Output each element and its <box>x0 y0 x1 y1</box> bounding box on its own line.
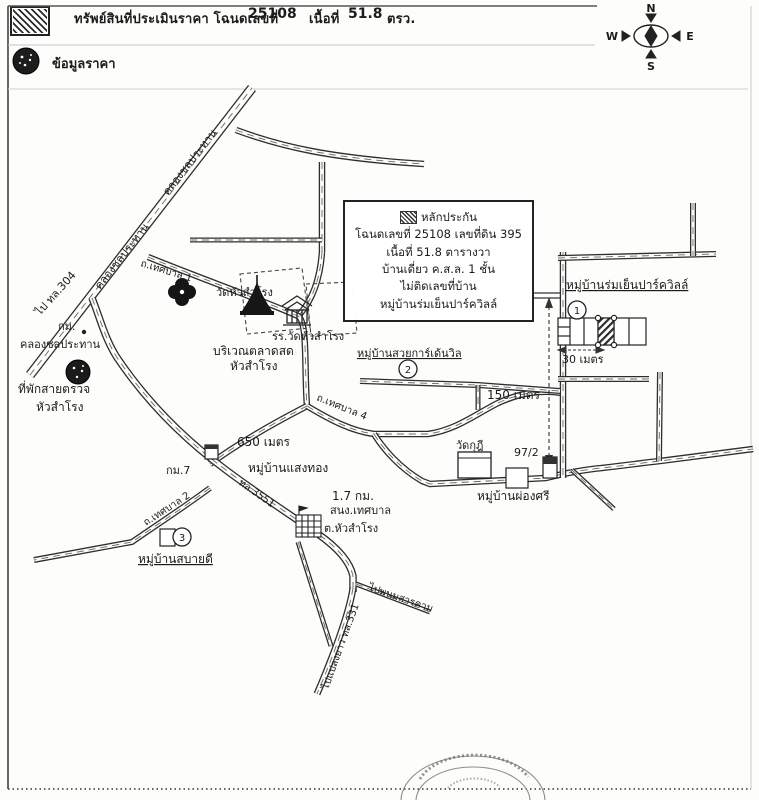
numbered-point-2: 2 <box>399 360 417 378</box>
wat-kudi-icon <box>458 452 491 478</box>
compass-rose: N S W E <box>606 2 694 73</box>
label-150m: 150 เมตร <box>487 388 541 402</box>
numbered-point-1: 1 <box>568 301 586 319</box>
appraisal-map-page: ทรัพย์สินที่ประเมินราคา โฉนดเลขที่ 25108… <box>0 0 759 800</box>
svg-text:3: 3 <box>179 533 185 544</box>
collateral-hatch-swatch <box>400 211 417 224</box>
label-650m: 650 เมตร <box>237 435 291 449</box>
compass-s: S <box>647 60 655 73</box>
site-map: N S W E <box>0 0 759 800</box>
compass-w: W <box>606 30 618 43</box>
label-wat-hua-samrong: วัดหัวสำโรง <box>216 285 273 299</box>
label-police-1: ที่พักสายตรวจ <box>18 380 90 396</box>
phong-si-building-icon <box>506 468 528 488</box>
label-canal-left: คลองชลประทาน <box>20 338 101 351</box>
svg-text:2: 2 <box>405 365 411 376</box>
label-police-2: หัวสำโรง <box>36 400 83 414</box>
legend-village-line: หมู่บ้านร่มเย็นปาร์ควิลล์ <box>380 296 497 313</box>
label-municipal-2: ต.หัวสำโรง <box>324 521 378 535</box>
label-village-sabai-dee: หมู่บ้านสบายดี <box>138 552 213 567</box>
label-30m: 30 เมตร <box>562 353 604 366</box>
approval-stamp <box>401 755 545 800</box>
label-1-7km: 1.7 กม. <box>332 489 374 503</box>
quatrefoil-landmark-icon <box>168 278 196 306</box>
legend-title: หลักประกัน <box>421 209 477 226</box>
house-97-2-icon <box>543 457 557 478</box>
label-school: รร.วัดหัวสำโรง <box>272 329 344 343</box>
label-village-rom-yen: หมู่บ้านร่มเย็นปาร์ควิลล์ <box>566 277 688 293</box>
label-market-1: บริเวณตลาดสด <box>213 344 294 358</box>
road-top-branch <box>236 130 424 164</box>
legend-area-line: เนื้อที่ 51.8 ตารางวา <box>386 244 490 261</box>
legend-no-number-line: ไม่ติดเลขที่บ้าน <box>400 278 476 295</box>
subject-plot-hatched <box>598 318 614 345</box>
label-village-phong-si: หมู่บ้านผ่องศรี <box>477 489 550 504</box>
legend-deed-line: โฉนดเลขที่ 25108 เลขที่ดิน 395 <box>355 226 522 243</box>
label-house-97-2: 97/2 <box>514 446 539 459</box>
numbered-point-3: 3 <box>173 528 191 546</box>
label-to-phanom: ไปพนมสารคาม <box>366 581 435 615</box>
label-village-saeng-thong: หมู่บ้านแสงทอง <box>248 461 328 476</box>
label-canal-mid: คลองชลประทาน <box>92 220 152 291</box>
municipal-office-icon <box>296 506 321 537</box>
housing-row-inset <box>558 315 646 347</box>
compass-n: N <box>646 2 655 15</box>
label-canal-upper: คลองชลประทาน <box>160 126 220 197</box>
label-km-post: กม. <box>58 320 75 333</box>
collateral-legend-box: หลักประกัน โฉนดเลขที่ 25108 เลขที่ดิน 39… <box>343 200 534 322</box>
road-network <box>30 88 753 694</box>
shelter-icon <box>205 445 218 459</box>
price-data-icon <box>13 48 39 74</box>
legend-connector-road <box>534 293 561 298</box>
compass-e: E <box>686 30 694 43</box>
label-municipal-1: สนง.เทศบาล <box>330 504 391 517</box>
label-to-plaeng-yao: ไปแปลงยาว ทล.331 <box>319 602 362 692</box>
label-village-suay-garden: หมู่บ้านสวยการ์เด้นวิล <box>357 347 462 360</box>
legend-house-line: บ้านเดี่ยว ค.ส.ล. 1 ชั้น <box>382 261 495 278</box>
page-border <box>8 6 751 789</box>
label-km7: กม.7 <box>166 464 190 477</box>
label-market-2: หัวสำโรง <box>230 359 277 373</box>
label-highway-3551: ทล.3551 <box>236 477 276 510</box>
police-point-icon <box>66 360 90 384</box>
km-post-dot <box>82 330 86 334</box>
svg-text:1: 1 <box>574 306 580 317</box>
measure-150m-line <box>545 297 553 466</box>
label-to-highway-304: ไป ทล.304 <box>32 269 79 319</box>
label-wat-kudi: วัดกุฎี <box>456 439 483 452</box>
